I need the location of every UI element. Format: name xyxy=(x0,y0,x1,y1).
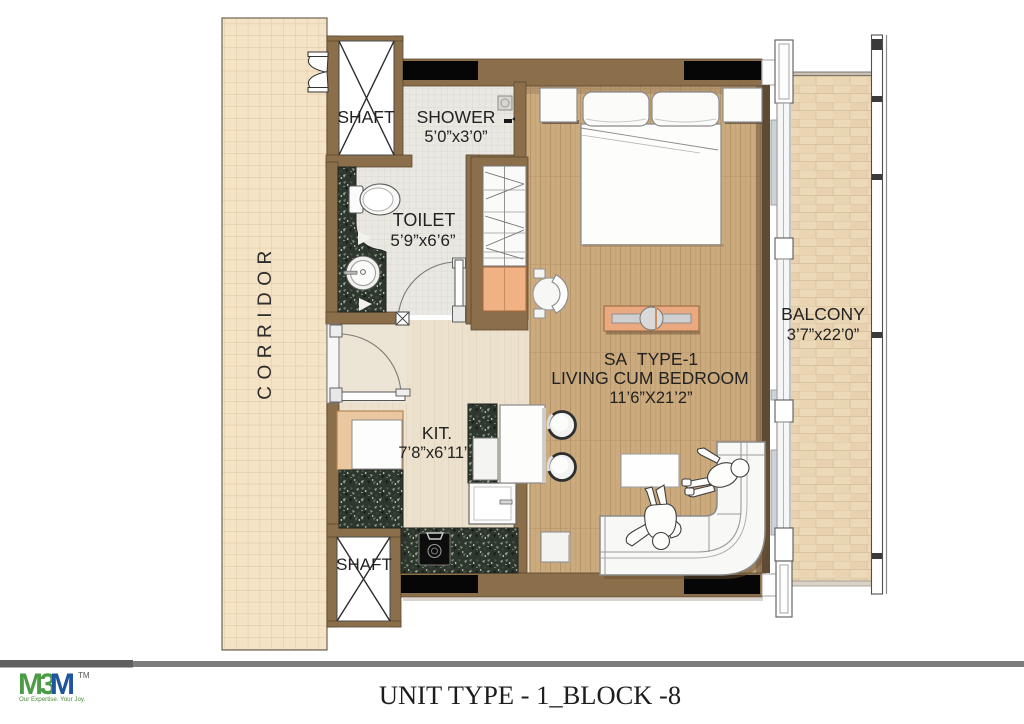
svg-text:3’7”x22’0”: 3’7”x22’0” xyxy=(787,326,859,344)
svg-text:LIVING CUM BEDROOM: LIVING CUM BEDROOM xyxy=(551,368,748,388)
svg-text:TOILET: TOILET xyxy=(393,210,456,230)
svg-text:SHAFT: SHAFT xyxy=(336,555,392,574)
svg-text:TM: TM xyxy=(78,671,90,680)
svg-text:7’8”x6’11”: 7’8”x6’11” xyxy=(398,444,469,462)
svg-text:Our Expertise. Your Joy.: Our Expertise. Your Joy. xyxy=(19,696,86,703)
svg-text:SHOWER: SHOWER xyxy=(417,107,496,127)
svg-text:5’9”x6’6”: 5’9”x6’6” xyxy=(390,231,456,250)
svg-text:UNIT TYPE - 1_BLOCK -8: UNIT TYPE - 1_BLOCK -8 xyxy=(379,680,681,710)
svg-text:BALCONY: BALCONY xyxy=(781,304,865,324)
svg-text:SA TYPE-1: SA TYPE-1 xyxy=(604,349,698,369)
svg-text:11’6”X21’2”: 11’6”X21’2” xyxy=(609,389,692,407)
svg-text:SHAFT: SHAFT xyxy=(337,107,395,127)
svg-text:CORRIDOR: CORRIDOR xyxy=(255,244,276,399)
svg-text:KIT.: KIT. xyxy=(422,423,452,443)
svg-text:5’0”x3’0”: 5’0”x3’0” xyxy=(424,128,487,146)
